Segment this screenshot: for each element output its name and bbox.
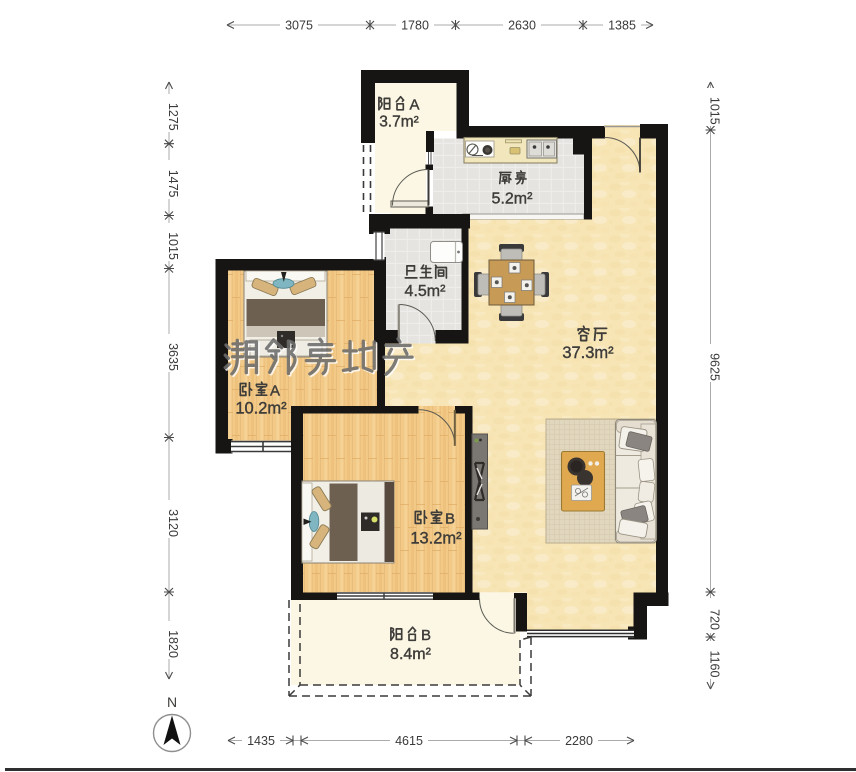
svg-text:1015: 1015 bbox=[708, 97, 722, 125]
svg-text:3075: 3075 bbox=[285, 19, 313, 33]
svg-text:3120: 3120 bbox=[166, 509, 180, 537]
svg-text:1275: 1275 bbox=[166, 103, 180, 131]
svg-text:2280: 2280 bbox=[565, 734, 593, 748]
svg-text:1435: 1435 bbox=[247, 734, 275, 748]
svg-text:A: A bbox=[410, 97, 420, 114]
svg-text:2630: 2630 bbox=[508, 19, 536, 33]
svg-text:1475: 1475 bbox=[166, 170, 180, 198]
svg-text:720: 720 bbox=[708, 609, 722, 630]
svg-text:10.2m²: 10.2m² bbox=[235, 400, 287, 418]
svg-text:8.4m²: 8.4m² bbox=[390, 646, 432, 663]
svg-text:13.2m²: 13.2m² bbox=[410, 530, 462, 548]
svg-text:B: B bbox=[445, 511, 455, 528]
svg-text:3.7m²: 3.7m² bbox=[379, 114, 419, 131]
svg-text:N: N bbox=[167, 694, 177, 710]
svg-text:1015: 1015 bbox=[166, 232, 180, 260]
svg-text:1780: 1780 bbox=[401, 19, 429, 33]
svg-text:4.5m²: 4.5m² bbox=[405, 283, 447, 300]
svg-text:A: A bbox=[270, 383, 280, 400]
svg-text:1160: 1160 bbox=[708, 651, 722, 678]
svg-text:B: B bbox=[421, 627, 431, 644]
svg-text:9625: 9625 bbox=[708, 353, 722, 381]
svg-text:3635: 3635 bbox=[166, 343, 180, 371]
svg-text:1385: 1385 bbox=[608, 19, 636, 33]
svg-text:5.2m²: 5.2m² bbox=[492, 191, 534, 208]
svg-text:37.3m²: 37.3m² bbox=[562, 344, 614, 362]
svg-text:1820: 1820 bbox=[166, 630, 180, 658]
svg-text:4615: 4615 bbox=[395, 734, 423, 748]
